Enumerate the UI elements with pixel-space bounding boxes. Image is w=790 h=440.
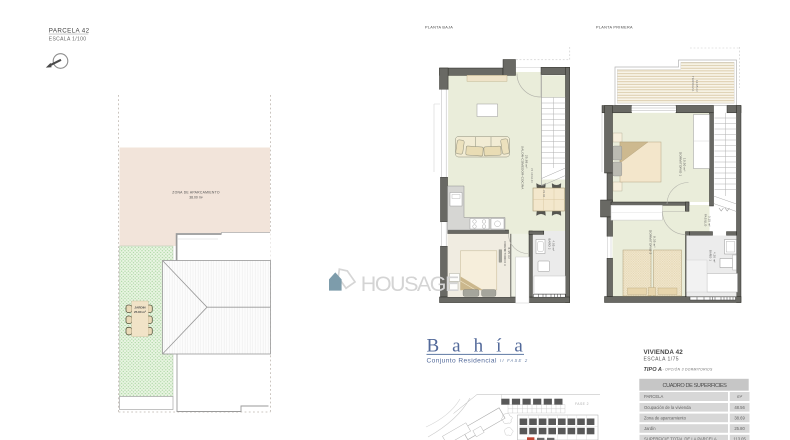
- svg-text:JARDIN: JARDIN: [134, 306, 145, 310]
- svg-text:PARCELA: PARCELA: [644, 394, 663, 399]
- svg-text:Bahía: Bahía: [427, 336, 536, 357]
- svg-text:12.65 m²: 12.65 m²: [695, 80, 699, 92]
- svg-text:TERRAZA: TERRAZA: [691, 76, 695, 91]
- svg-text:II FASE 2: II FASE 2: [500, 358, 528, 363]
- svg-text:Ocupación de la vivienda: Ocupación de la vivienda: [644, 405, 691, 410]
- svg-text:V2 120x120: V2 120x120: [530, 168, 533, 183]
- svg-text:9.35 m²: 9.35 m²: [653, 236, 657, 248]
- svg-text:P1 80: P1 80: [542, 190, 545, 198]
- svg-text:TIPO A: TIPO A: [644, 367, 662, 373]
- svg-text:ESCALA 1/100: ESCALA 1/100: [49, 37, 87, 43]
- svg-text:25.88 m²: 25.88 m²: [525, 155, 529, 168]
- svg-text:4.05 m²: 4.05 m²: [552, 241, 556, 252]
- svg-text:PLANTA PRIMERA: PLANTA PRIMERA: [596, 26, 633, 30]
- svg-text:CUADRO DE SUPERFICIES: CUADRO DE SUPERFICIES: [662, 383, 727, 389]
- svg-text:PASILLO: PASILLO: [704, 214, 708, 226]
- svg-text:113.05: 113.05: [733, 436, 746, 440]
- svg-text:25.80 m²: 25.80 m²: [134, 310, 146, 314]
- svg-text:ESCALA 1/75: ESCALA 1/75: [644, 356, 680, 362]
- svg-text:Conjunto Residencial: Conjunto Residencial: [427, 357, 497, 364]
- svg-text:DORMITORIO 3: DORMITORIO 3: [503, 242, 507, 266]
- svg-text:Jardín: Jardín: [644, 426, 656, 431]
- svg-text:4.20 m²: 4.20 m²: [712, 252, 716, 263]
- svg-text:HOUSAGE: HOUSAGE: [361, 272, 459, 296]
- svg-text:ZONA DE APARCAMIENTO: ZONA DE APARCAMIENTO: [172, 190, 220, 194]
- svg-text:3.15 m²: 3.15 m²: [707, 216, 711, 227]
- svg-text:DORMITORIO 2: DORMITORIO 2: [649, 230, 653, 254]
- svg-text:38.69: 38.69: [734, 415, 745, 420]
- svg-text:PARCELA 42: PARCELA 42: [49, 28, 90, 35]
- svg-text:PLANTA BAJA: PLANTA BAJA: [425, 26, 453, 30]
- svg-text:FASE 2: FASE 2: [575, 402, 589, 406]
- svg-text:48.56: 48.56: [734, 405, 745, 410]
- svg-text:m²: m²: [737, 394, 742, 399]
- svg-text:SALON-COMEDOR-COCINA: SALON-COMEDOR-COCINA: [520, 146, 524, 190]
- svg-text:SUPERFICIE TOTAL DE LA PARCELA: SUPERFICIE TOTAL DE LA PARCELA: [644, 436, 717, 440]
- svg-text:25.80: 25.80: [734, 426, 745, 431]
- svg-text:10.50 m²: 10.50 m²: [683, 158, 687, 171]
- svg-text:VIVIENDA 42: VIVIENDA 42: [644, 349, 684, 356]
- svg-text:DORMITORIO 1: DORMITORIO 1: [679, 152, 683, 176]
- svg-text:- OPCIÓN 3 DORMITORIOS: - OPCIÓN 3 DORMITORIOS: [663, 367, 713, 372]
- svg-text:Zona de aparcamiento: Zona de aparcamiento: [644, 415, 687, 420]
- svg-text:38.00 m²: 38.00 m²: [189, 196, 203, 200]
- svg-text:8.35 m²: 8.35 m²: [507, 248, 511, 260]
